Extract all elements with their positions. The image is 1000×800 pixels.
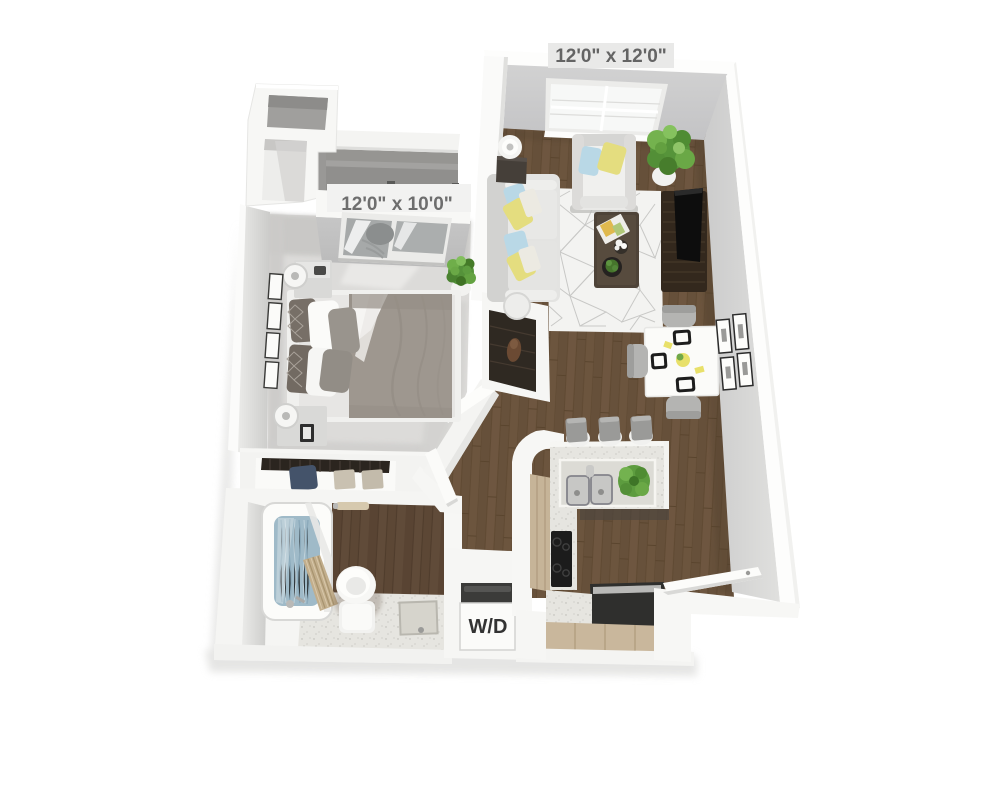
svg-text:12'0" x 10'0": 12'0" x 10'0" [341,194,453,215]
svg-text:12'0" x 12'0": 12'0" x 12'0" [555,46,667,67]
svg-text:W/D: W/D [469,616,508,638]
